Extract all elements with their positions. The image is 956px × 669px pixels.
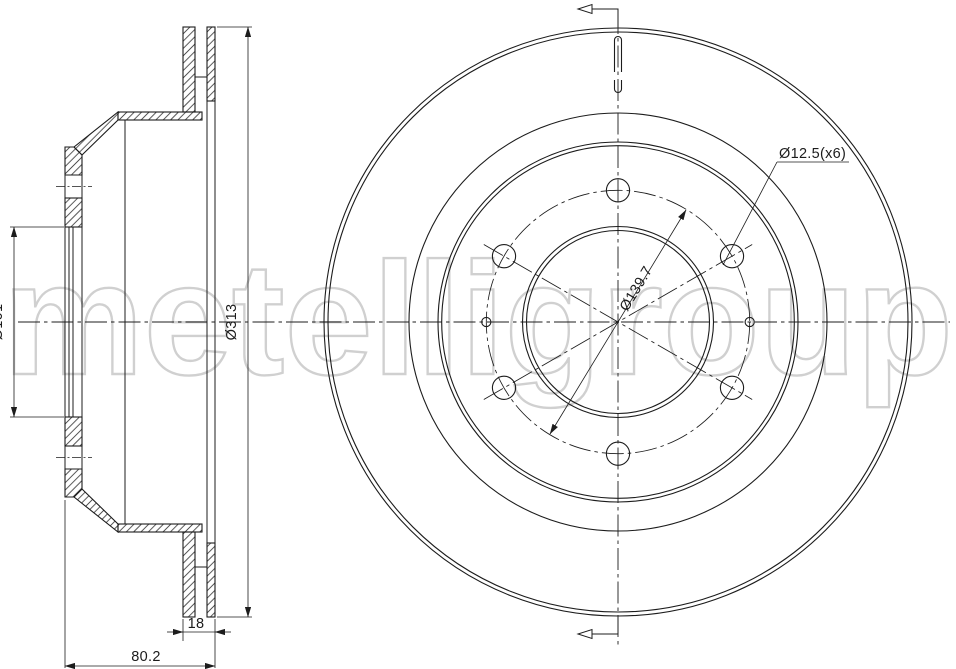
dim-thickness: 18 [167, 616, 231, 668]
watermark-text: metelligroup [3, 229, 953, 408]
hat-wall-section [118, 112, 202, 120]
inboard-plate-section [207, 543, 215, 617]
dim-overall-height-label: 80.2 [131, 649, 160, 665]
outboard-plate-section [183, 27, 195, 112]
watermark: metelligroup [3, 229, 953, 408]
section-cut-areas-top [65, 27, 215, 227]
dim-bore-label: Ø101 [0, 304, 6, 341]
view-direction-arrow-top [578, 5, 618, 28]
brake-disc-technical-drawing: metelligroup [0, 0, 956, 669]
hat-cone-section [74, 489, 118, 532]
section-cut-areas-bottom [65, 417, 215, 617]
hub-flange-section [65, 198, 82, 227]
hat-cone-section [74, 112, 118, 155]
hat-wall-section [118, 524, 202, 532]
dim-thickness-label: 18 [188, 616, 205, 632]
outboard-plate-section [183, 532, 195, 617]
inboard-plate-section [207, 27, 215, 101]
dim-bolt-holes-label: Ø12.5(x6) [779, 146, 846, 162]
hub-flange-section [65, 417, 82, 446]
dim-outer-label: Ø313 [224, 304, 240, 341]
view-direction-arrow-bottom [578, 617, 618, 639]
